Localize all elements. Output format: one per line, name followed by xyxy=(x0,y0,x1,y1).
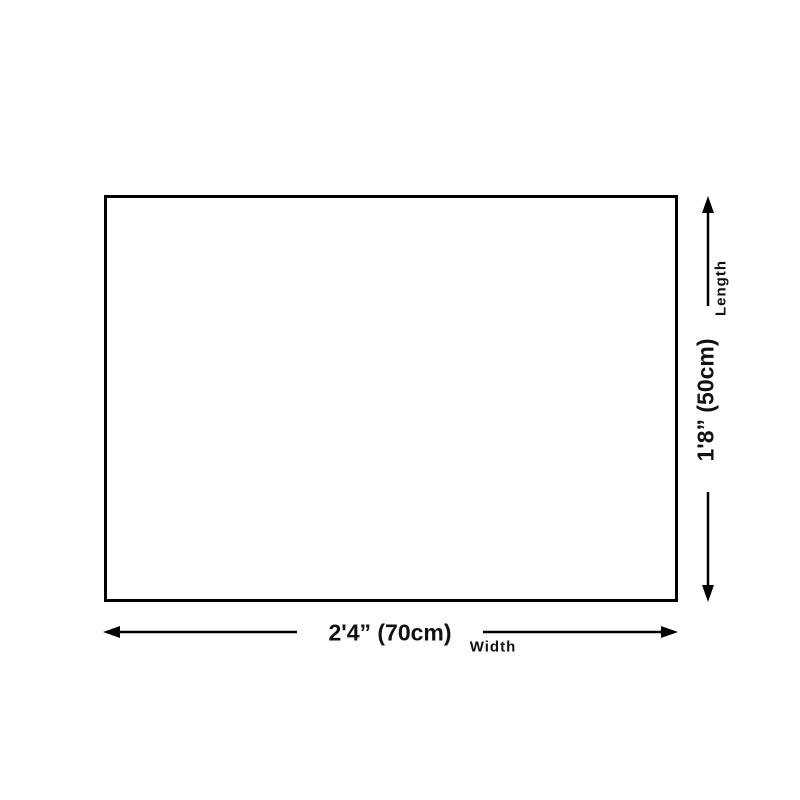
length-arrow-down xyxy=(702,492,714,602)
width-dimension-value: 2'4” (70cm) xyxy=(328,620,451,647)
width-arrow-right xyxy=(483,626,678,638)
width-dimension-caption: Width xyxy=(470,639,517,656)
length-dimension-value: 1'8” (50cm) xyxy=(693,338,720,461)
product-outline-rectangle xyxy=(104,195,678,602)
length-dimension-caption: Length xyxy=(713,260,730,316)
width-arrow-left xyxy=(103,626,297,638)
diagram-stage: 2'4” (70cm) Width 1'8” (50cm) Length xyxy=(0,0,800,800)
